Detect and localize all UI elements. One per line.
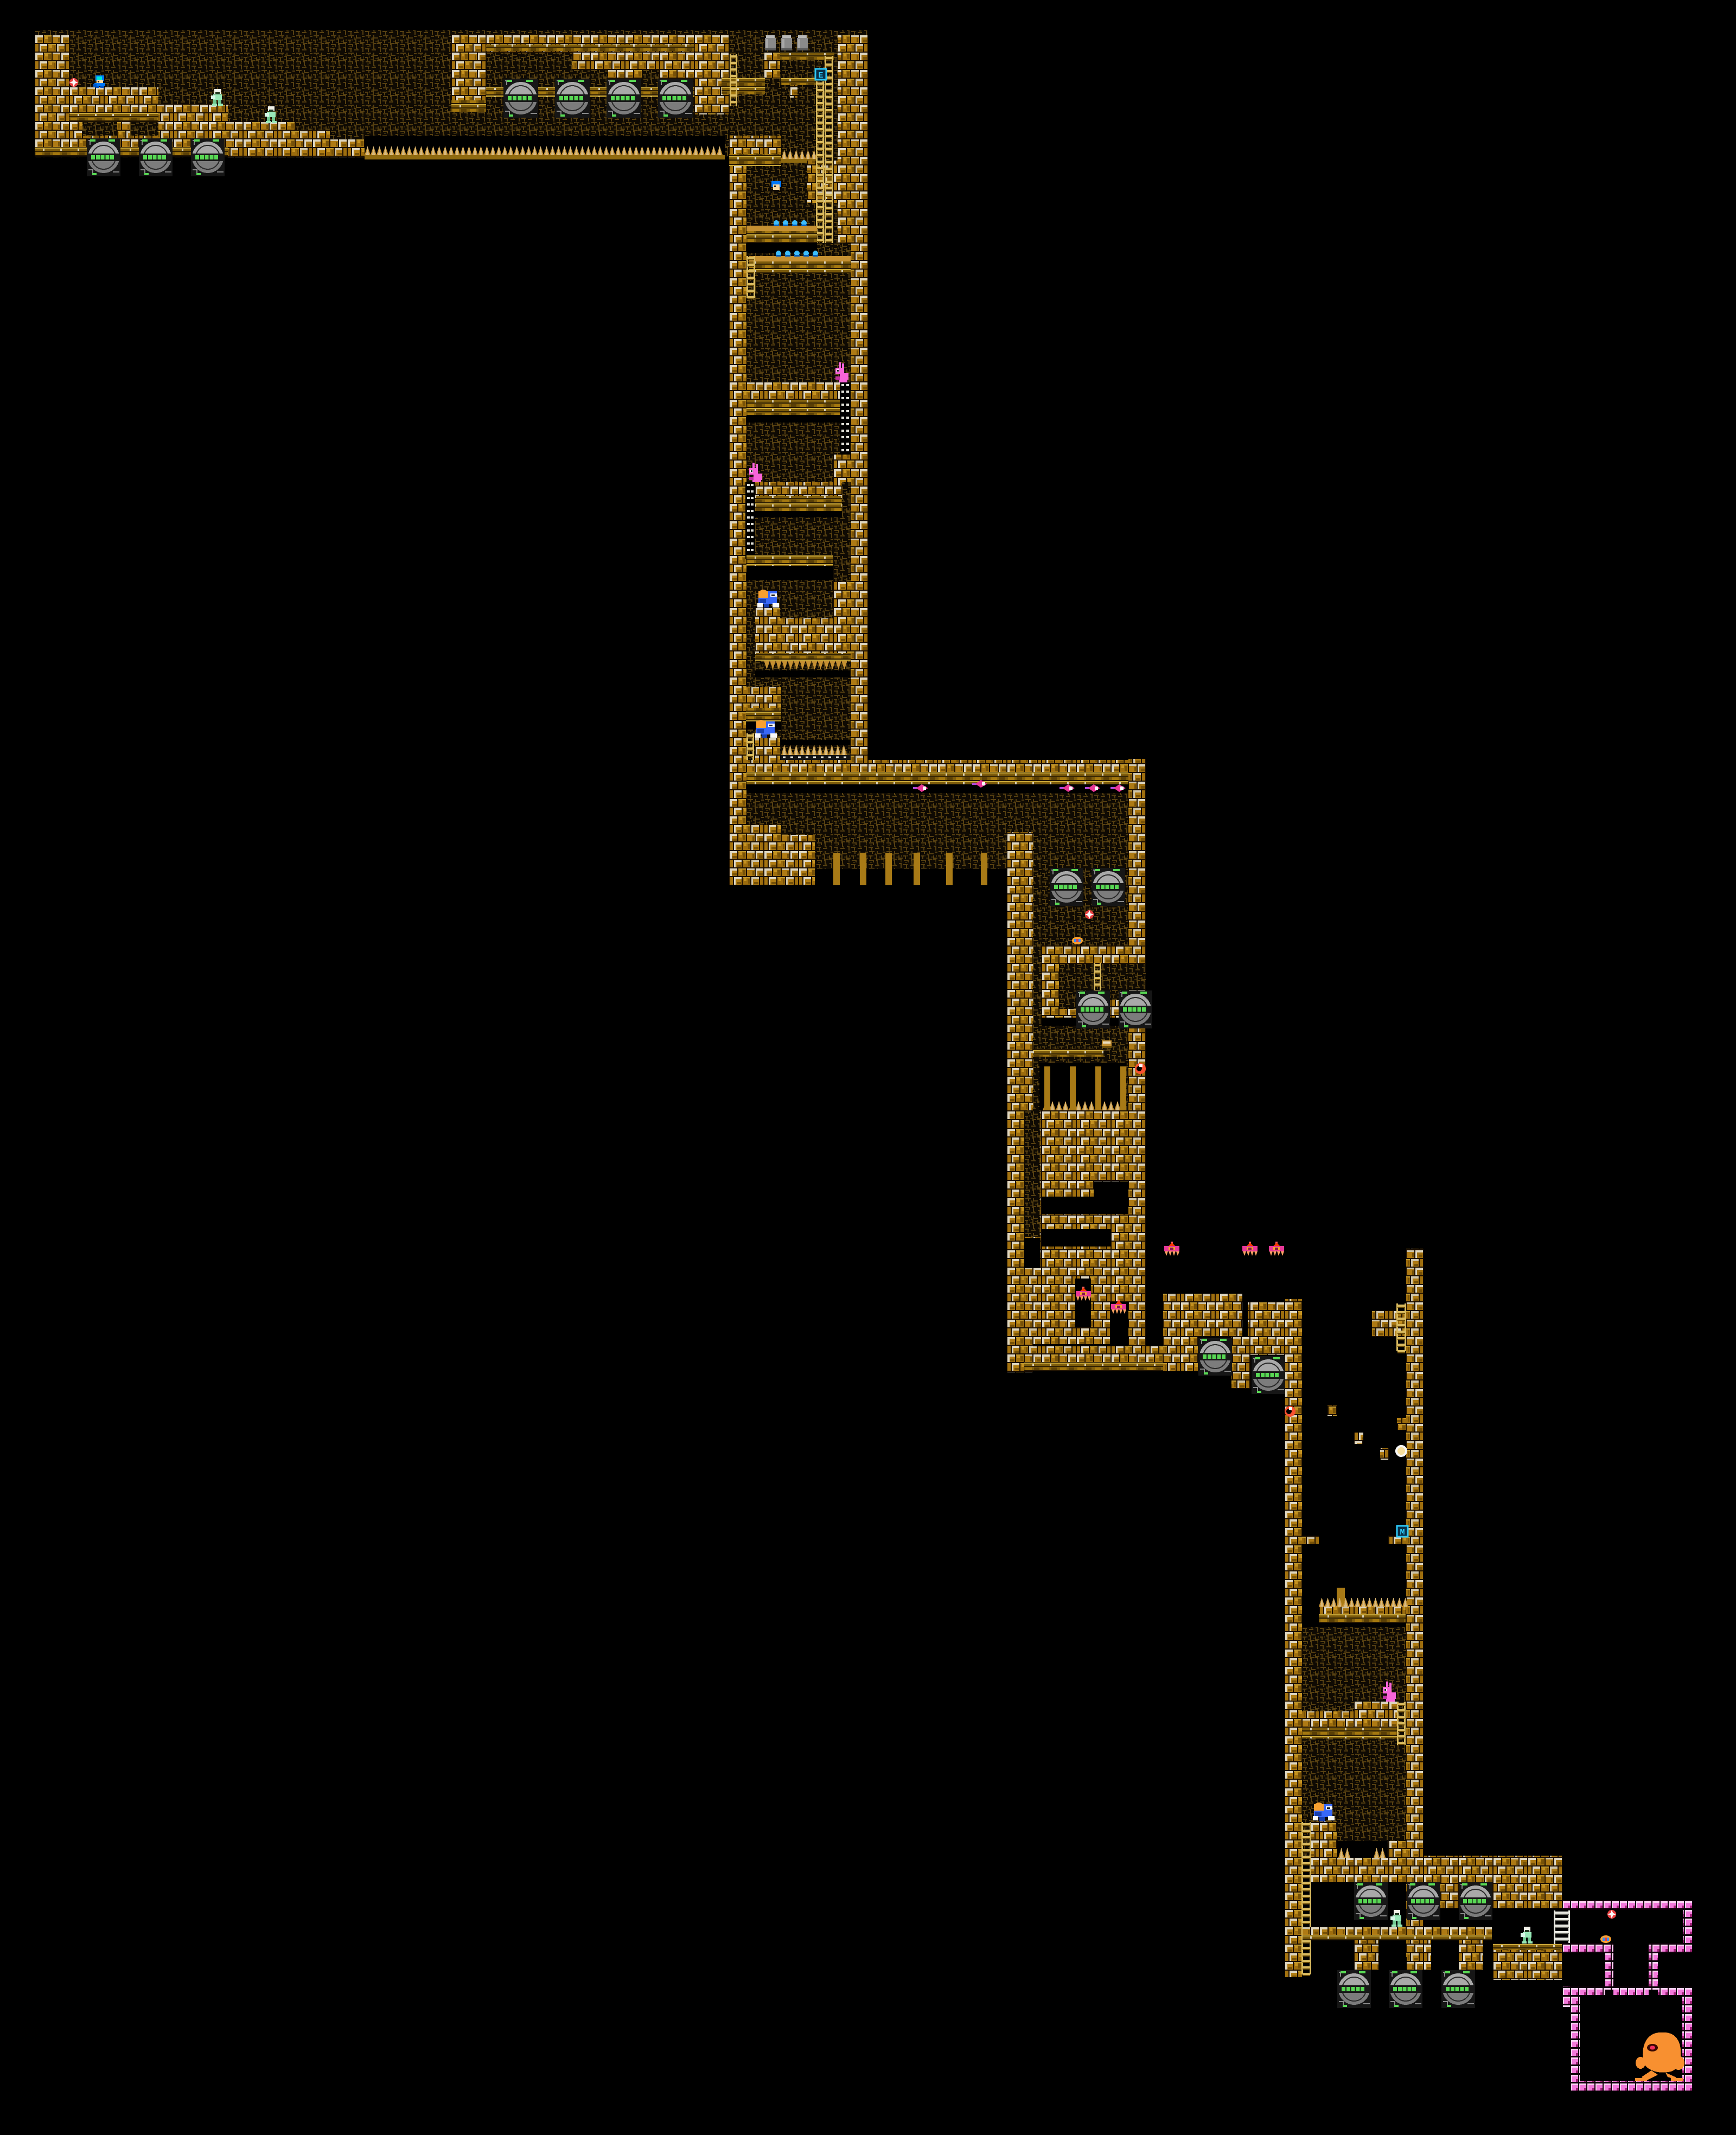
svg-text:M: M: [1400, 1528, 1405, 1537]
svg-text:E: E: [818, 71, 823, 80]
